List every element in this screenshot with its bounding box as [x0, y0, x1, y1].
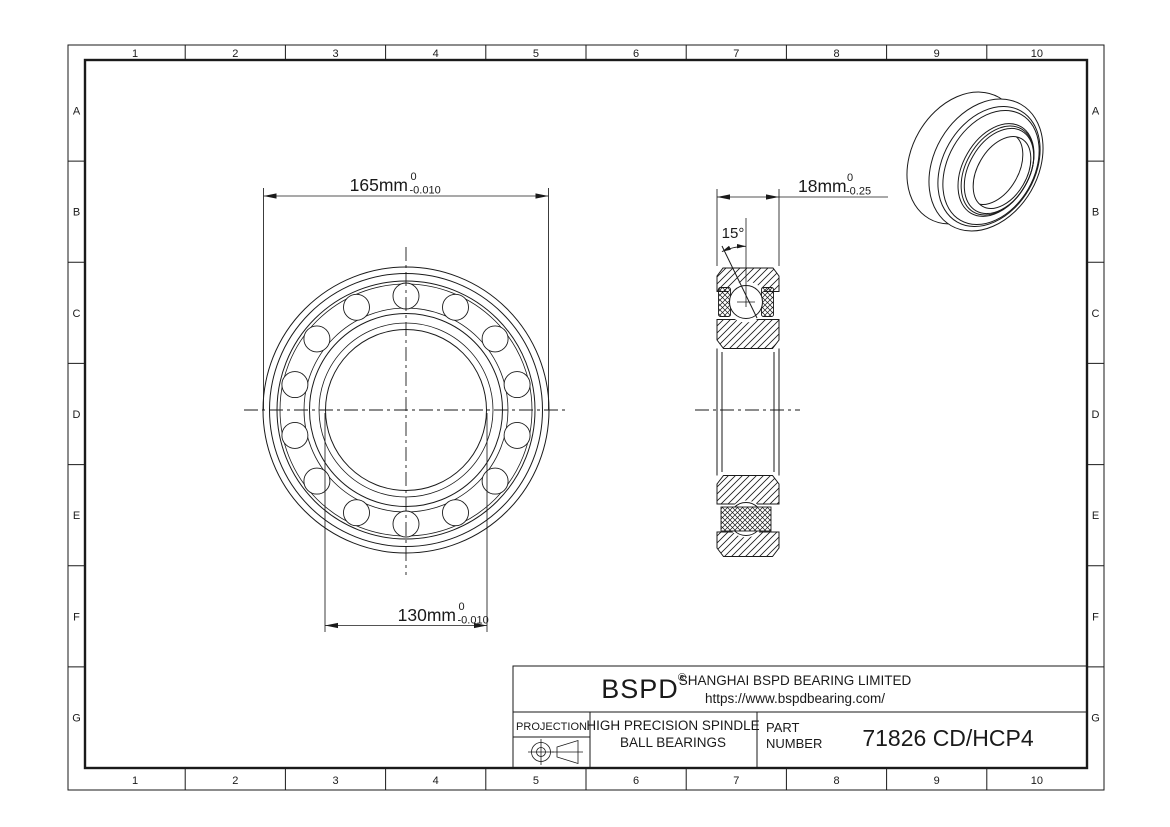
ball [304, 326, 330, 352]
grid-col-label: 10 [1031, 48, 1043, 60]
ball [304, 468, 330, 494]
grid-row-label: F [73, 611, 80, 623]
grid-col-label: 8 [833, 775, 839, 787]
grid-col-label: 6 [633, 775, 639, 787]
cage-section [762, 288, 774, 317]
grid-col-label: 3 [332, 48, 338, 60]
grid-row-label: A [73, 106, 81, 118]
part-label-line1: PART [766, 720, 800, 735]
ball [282, 372, 308, 398]
grid-row-label: B [73, 207, 80, 219]
ball [443, 294, 469, 320]
projection-label: PROJECTION [516, 721, 587, 733]
inner-ring-section-top [717, 320, 779, 349]
dim-bore-tol-top: 0 [459, 601, 465, 613]
grid-col-label: 2 [232, 48, 238, 60]
contact-angle-label: 15° [722, 225, 745, 242]
ball [344, 294, 370, 320]
grid-row-label: A [1092, 106, 1100, 118]
engineering-drawing: 1 2 3 4 5 6 7 8 9 10 1 2 3 4 5 6 7 8 9 1… [0, 0, 1170, 827]
grid-col-label: 7 [733, 775, 739, 787]
drawing-sheet: 1 2 3 4 5 6 7 8 9 10 1 2 3 4 5 6 7 8 9 1… [0, 0, 1170, 827]
grid-row-label: B [1092, 207, 1099, 219]
grid-row-label: C [1092, 308, 1100, 320]
grid-col-label: 10 [1031, 775, 1043, 787]
company-website: https://www.bspdbearing.com/ [705, 691, 885, 706]
ball [443, 500, 469, 526]
grid-col-labels-bottom: 1 2 3 4 5 6 7 8 9 10 [132, 775, 1043, 787]
grid-col-label: 5 [533, 48, 539, 60]
grid-col-label: 5 [533, 775, 539, 787]
title-block: BSPD ® SHANGHAI BSPD BEARING LIMITED htt… [513, 666, 1087, 768]
grid-row-label: G [1091, 712, 1100, 724]
cage-block-bottom [721, 507, 771, 531]
ring-faces [717, 349, 779, 476]
grid-col-label: 4 [433, 775, 439, 787]
grid-col-label: 8 [833, 48, 839, 60]
grid-row-label: D [73, 409, 81, 421]
dim-bore-value: 130mm [398, 605, 456, 625]
grid-col-label: 9 [934, 48, 940, 60]
company-logo: BSPD [601, 674, 679, 704]
dim-od-tol-bottom: -0.010 [410, 185, 441, 197]
ball [344, 500, 370, 526]
company-name: SHANGHAI BSPD BEARING LIMITED [679, 673, 912, 688]
product-title-line1: HIGH PRECISION SPINDLE [586, 718, 759, 733]
grid-col-label: 3 [332, 775, 338, 787]
projection-symbol-icon [528, 739, 583, 765]
inner-ring-section-bottom [717, 476, 779, 505]
iso-outer-face [906, 78, 1066, 251]
grid-col-label: 6 [633, 48, 639, 60]
ball [504, 372, 530, 398]
grid-col-labels-top: 1 2 3 4 5 6 7 8 9 10 [132, 48, 1043, 60]
dim-od-tol-top: 0 [411, 171, 417, 183]
dim-width-tol-bottom: -0.25 [846, 186, 871, 198]
contact-angle-arc [722, 246, 746, 251]
grid-row-label: D [1092, 409, 1100, 421]
ball [482, 468, 508, 494]
grid-row-label: G [72, 712, 81, 724]
ball [282, 422, 308, 448]
grid-col-label: 2 [232, 775, 238, 787]
dimension-width: 18mm 0 -0.25 [717, 172, 888, 266]
dim-width-tol-top: 0 [847, 172, 853, 184]
product-title-line2: BALL BEARINGS [620, 735, 726, 750]
grid-col-label: 7 [733, 48, 739, 60]
grid-row-label: E [1092, 510, 1099, 522]
cage-section [719, 288, 731, 317]
dim-bore-tol-bottom: -0.010 [458, 615, 489, 627]
front-view [244, 247, 568, 575]
ball [504, 422, 530, 448]
grid-row-labels-right: A B C D E F G [1091, 106, 1100, 725]
grid-col-label: 9 [934, 775, 940, 787]
grid-row-label: F [1092, 611, 1099, 623]
part-number: 71826 CD/HCP4 [862, 725, 1034, 751]
grid-row-labels-left: A B C D E F G [72, 106, 81, 725]
dim-od-value: 165mm [350, 175, 408, 195]
grid-col-label: 4 [433, 48, 439, 60]
ball [482, 326, 508, 352]
grid-col-label: 1 [132, 775, 138, 787]
section-view: 15° [695, 218, 800, 557]
grid-row-label: E [73, 510, 80, 522]
part-label-line2: NUMBER [766, 736, 822, 751]
grid-row-label: C [73, 308, 81, 320]
grid-col-label: 1 [132, 48, 138, 60]
dim-width-value: 18mm [798, 176, 847, 196]
isometric-view [884, 71, 1066, 251]
